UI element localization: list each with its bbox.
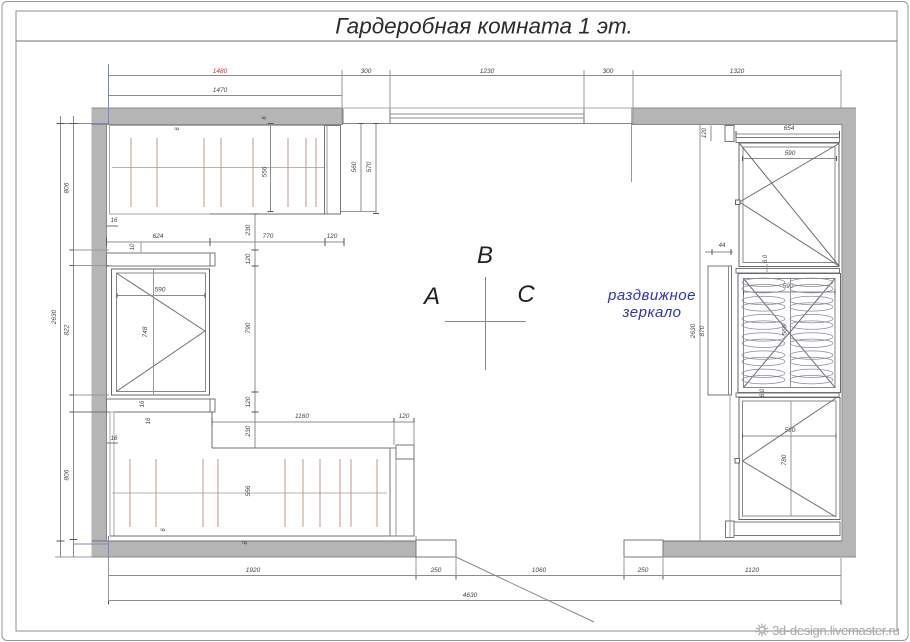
svg-text:16: 16 — [146, 417, 152, 424]
svg-text:230: 230 — [245, 425, 252, 437]
svg-text:1230: 1230 — [480, 68, 495, 75]
svg-text:770: 770 — [263, 233, 274, 240]
svg-text:16: 16 — [140, 400, 146, 407]
svg-text:раздвижное: раздвижное — [607, 287, 696, 304]
svg-text:16: 16 — [111, 436, 118, 442]
svg-text:4630: 4630 — [463, 592, 478, 599]
svg-text:780: 780 — [781, 454, 788, 465]
svg-text:2630: 2630 — [51, 309, 58, 325]
svg-text:B: B — [477, 242, 493, 269]
svg-text:790: 790 — [245, 322, 252, 333]
svg-text:3d-design.livemaster.ru: 3d-design.livemaster.ru — [772, 623, 900, 638]
svg-text:Гардеробная комната 1 эт.: Гардеробная комната 1 эт. — [335, 14, 633, 39]
svg-text:250: 250 — [430, 567, 442, 574]
svg-text:654: 654 — [784, 125, 795, 132]
svg-text:10: 10 — [130, 243, 136, 250]
svg-text:120: 120 — [245, 253, 252, 264]
svg-text:120: 120 — [245, 396, 252, 407]
svg-text:556: 556 — [262, 166, 269, 177]
svg-text:44: 44 — [719, 243, 726, 249]
svg-text:6.0: 6.0 — [763, 254, 769, 263]
svg-text:120: 120 — [327, 233, 338, 240]
svg-text:C: C — [517, 281, 535, 308]
svg-text:1060: 1060 — [532, 567, 547, 574]
svg-text:556: 556 — [245, 485, 252, 496]
svg-text:зеркало: зеркало — [621, 304, 681, 321]
svg-text:870: 870 — [699, 325, 706, 336]
svg-text:120: 120 — [399, 413, 410, 420]
svg-text:1120: 1120 — [745, 567, 759, 574]
svg-text:806: 806 — [64, 469, 71, 480]
svg-text:A: A — [422, 283, 440, 310]
svg-text:230: 230 — [245, 224, 252, 236]
svg-text:560: 560 — [351, 161, 358, 172]
svg-text:570: 570 — [366, 161, 373, 172]
svg-text:590: 590 — [785, 150, 796, 157]
svg-text:300: 300 — [361, 68, 372, 75]
svg-text:1920: 1920 — [246, 567, 261, 574]
svg-text:6.0: 6.0 — [760, 388, 766, 397]
svg-text:806: 806 — [64, 182, 71, 193]
svg-text:300: 300 — [603, 68, 614, 75]
svg-text:250: 250 — [637, 567, 649, 574]
svg-text:1480: 1480 — [213, 68, 228, 75]
svg-text:624: 624 — [153, 233, 164, 240]
svg-text:1320: 1320 — [730, 68, 745, 75]
svg-text:590: 590 — [155, 287, 166, 294]
svg-text:822: 822 — [64, 324, 71, 335]
svg-text:590: 590 — [785, 427, 796, 434]
svg-text:2630: 2630 — [690, 323, 697, 339]
svg-text:16: 16 — [111, 218, 118, 224]
svg-text:120: 120 — [702, 127, 708, 138]
svg-text:1470: 1470 — [213, 87, 228, 94]
svg-text:748: 748 — [142, 326, 149, 337]
svg-text:1160: 1160 — [295, 413, 309, 420]
